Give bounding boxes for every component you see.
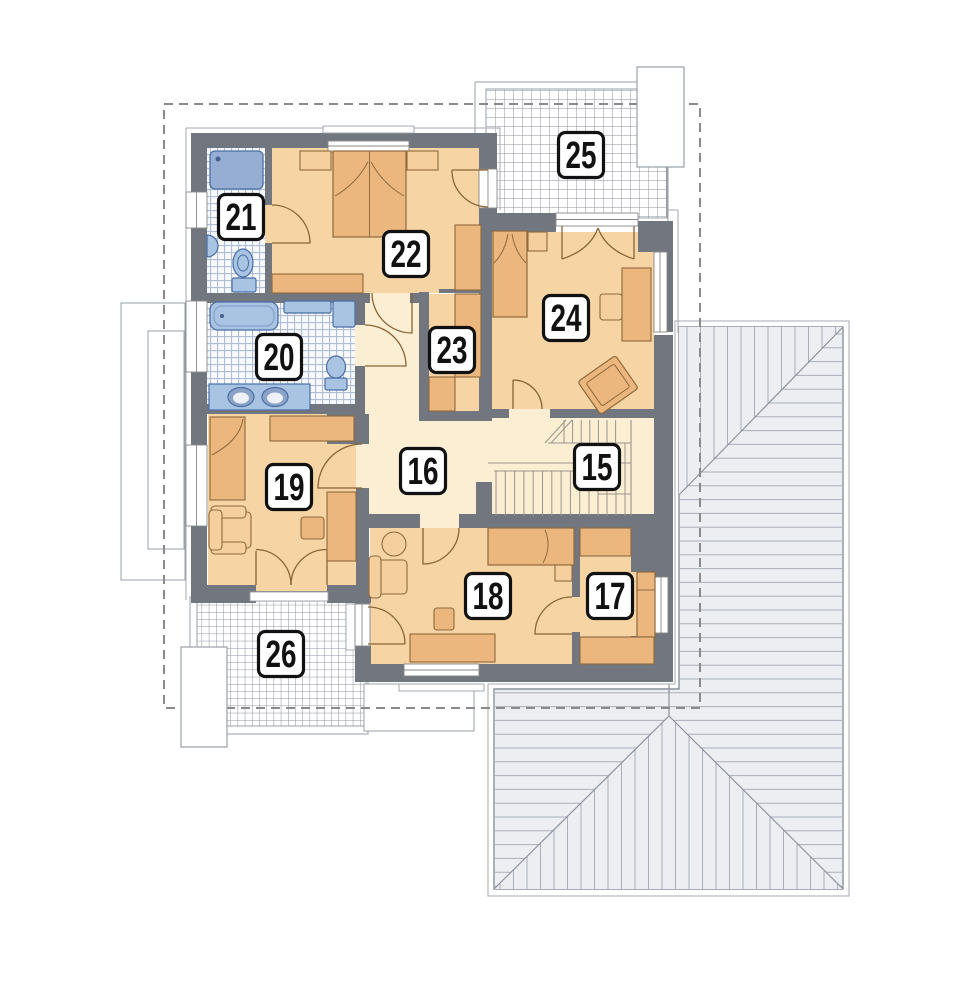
svg-text:18: 18 [473,576,504,618]
svg-text:22: 22 [391,234,422,276]
svg-text:21: 21 [226,197,257,239]
svg-text:17: 17 [595,576,626,618]
svg-text:15: 15 [582,447,613,489]
svg-text:25: 25 [566,135,597,177]
svg-text:16: 16 [408,451,439,493]
svg-text:23: 23 [437,330,468,372]
svg-text:24: 24 [551,298,582,340]
svg-text:19: 19 [274,467,305,509]
svg-text:26: 26 [266,634,297,676]
svg-text:20: 20 [264,337,295,379]
